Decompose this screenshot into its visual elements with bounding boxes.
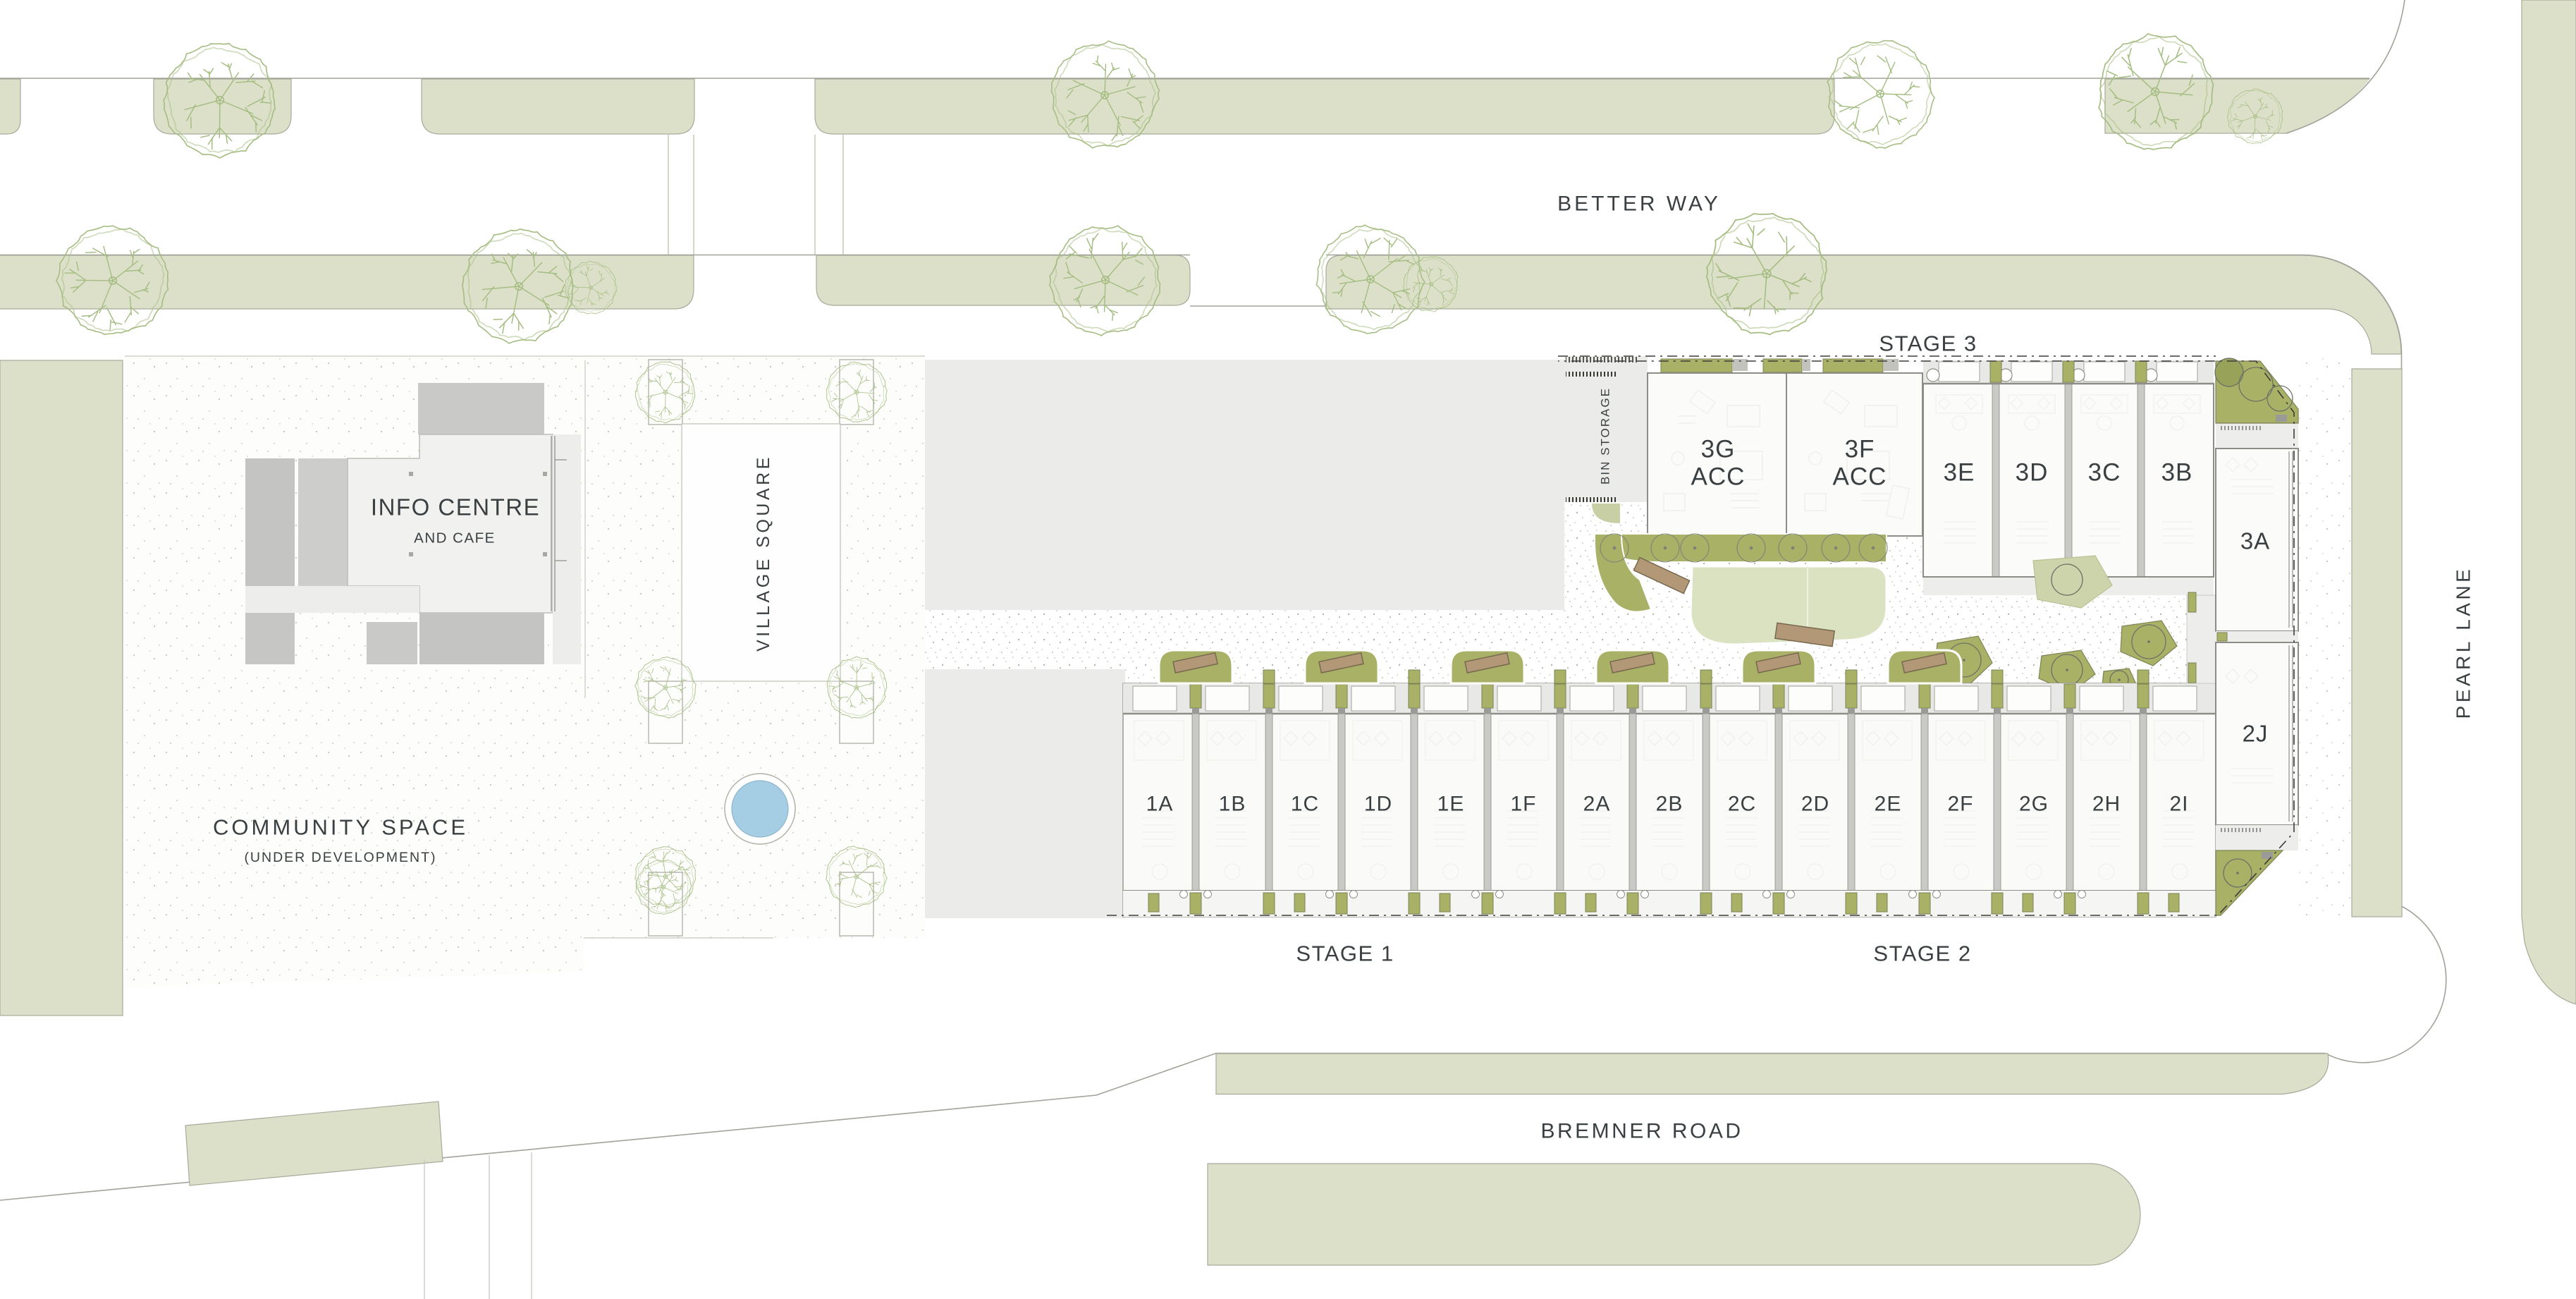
svg-text:1F: 1F	[1510, 793, 1536, 816]
svg-text:2B: 2B	[1656, 793, 1683, 816]
svg-text:PEARL LANE: PEARL LANE	[2453, 566, 2474, 719]
svg-text:VILLAGE SQUARE: VILLAGE SQUARE	[754, 454, 773, 652]
svg-text:3F: 3F	[1845, 436, 1875, 463]
svg-text:COMMUNITY SPACE: COMMUNITY SPACE	[213, 815, 468, 840]
svg-text:2H: 2H	[2092, 793, 2121, 816]
svg-text:3G: 3G	[1701, 436, 1736, 463]
svg-text:3D: 3D	[2016, 459, 2049, 487]
svg-text:BIN STORAGE: BIN STORAGE	[1599, 387, 1612, 484]
svg-text:2F: 2F	[1947, 793, 1973, 816]
svg-text:1C: 1C	[1291, 793, 1319, 816]
svg-text:2G: 2G	[2019, 793, 2049, 816]
svg-text:2I: 2I	[2169, 793, 2188, 816]
svg-text:2A: 2A	[1583, 793, 1611, 816]
svg-text:INFO CENTRE: INFO CENTRE	[371, 494, 540, 520]
svg-text:STAGE 2: STAGE 2	[1873, 941, 1971, 966]
svg-text:1B: 1B	[1219, 793, 1246, 816]
svg-text:3A: 3A	[2240, 528, 2270, 554]
svg-text:1E: 1E	[1437, 793, 1465, 816]
svg-text:3C: 3C	[2088, 459, 2121, 487]
svg-text:1A: 1A	[1146, 793, 1174, 816]
svg-text:3B: 3B	[2161, 459, 2193, 487]
svg-text:BETTER WAY: BETTER WAY	[1557, 193, 1721, 216]
svg-text:ACC: ACC	[1691, 463, 1746, 491]
svg-text:BREMNER ROAD: BREMNER ROAD	[1540, 1120, 1743, 1143]
svg-text:STAGE 1: STAGE 1	[1296, 941, 1394, 966]
svg-text:ACC: ACC	[1833, 463, 1887, 491]
svg-text:AND CAFE: AND CAFE	[414, 530, 496, 547]
svg-text:STAGE 3: STAGE 3	[1879, 331, 1977, 356]
svg-text:(UNDER DEVELOPMENT): (UNDER DEVELOPMENT)	[244, 850, 436, 865]
svg-text:1D: 1D	[1364, 793, 1392, 816]
svg-text:2J: 2J	[2243, 721, 2269, 747]
svg-text:2D: 2D	[1801, 793, 1829, 816]
svg-text:2C: 2C	[1728, 793, 1756, 816]
svg-text:3E: 3E	[1944, 459, 1975, 487]
svg-text:2E: 2E	[1875, 793, 1902, 816]
